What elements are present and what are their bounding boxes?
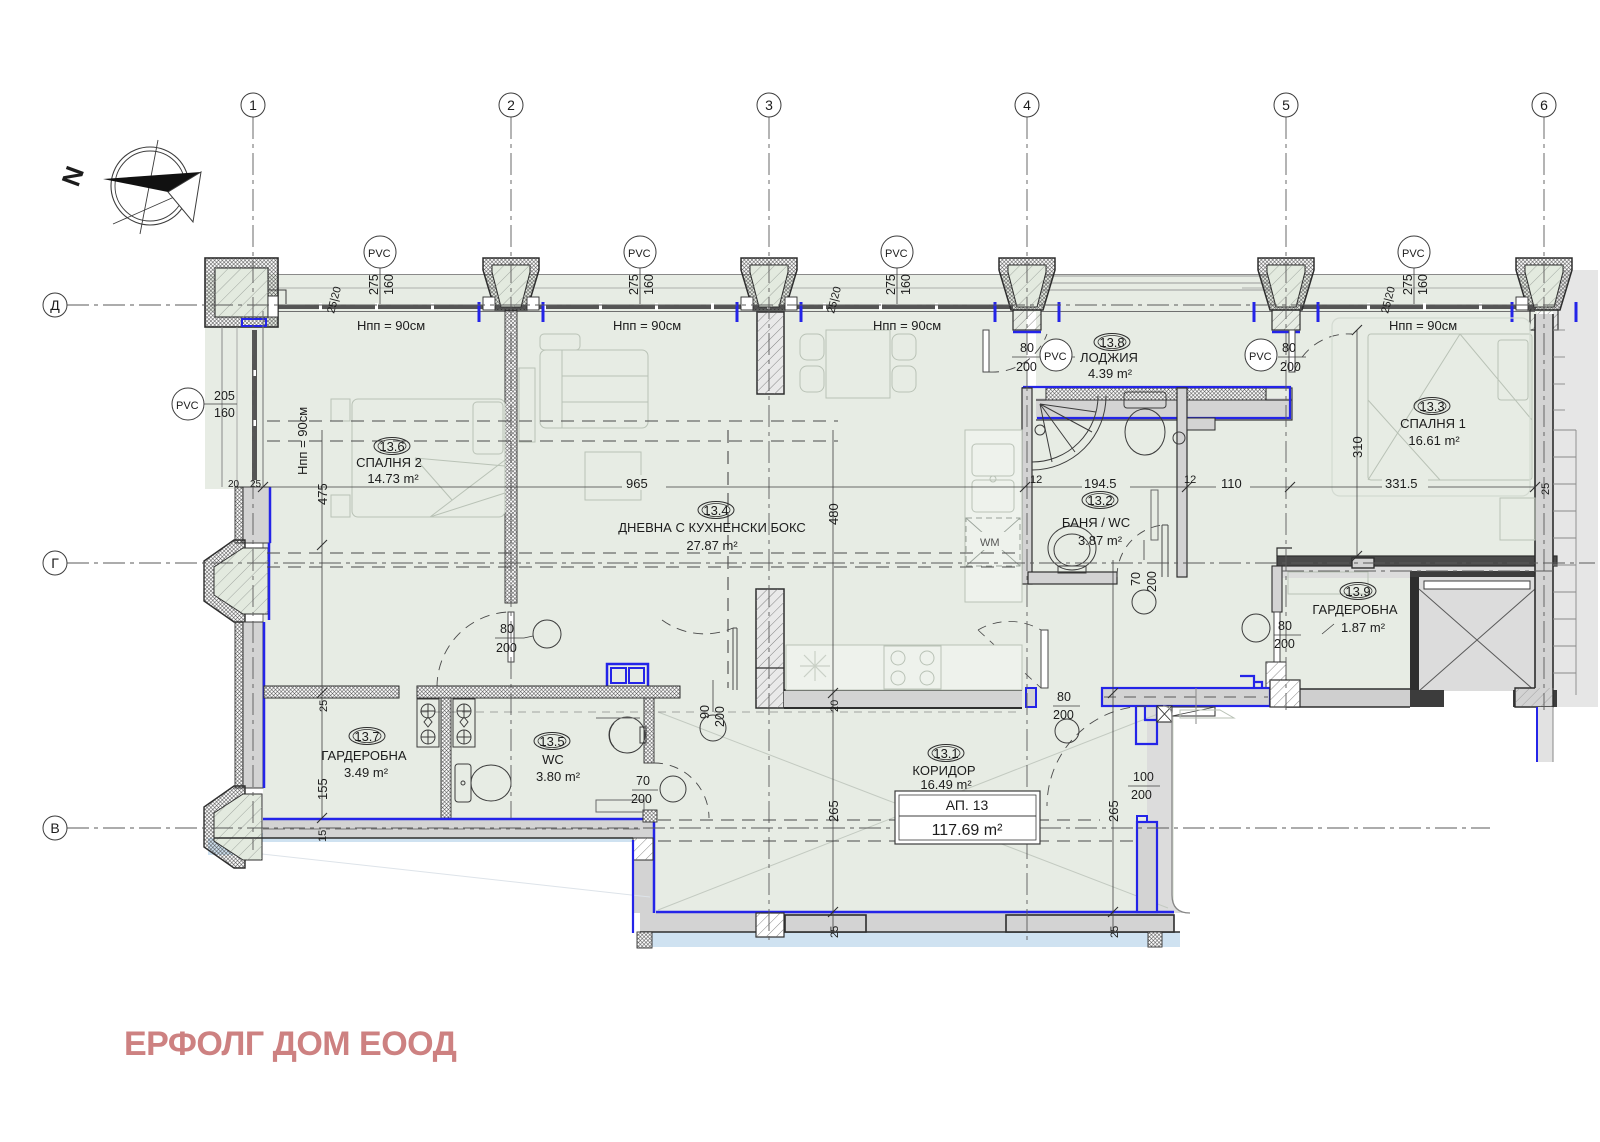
svg-text:25: 25 xyxy=(318,700,330,712)
svg-text:АП. 13: АП. 13 xyxy=(946,797,989,813)
svg-text:200: 200 xyxy=(631,792,652,806)
svg-text:25: 25 xyxy=(829,926,841,938)
svg-text:265: 265 xyxy=(826,800,841,822)
svg-text:80: 80 xyxy=(1057,690,1071,704)
svg-text:3.80 m²: 3.80 m² xyxy=(536,769,581,784)
svg-text:965: 965 xyxy=(626,476,648,491)
svg-text:ДНЕВНА С КУХНЕНСКИ БОКС: ДНЕВНА С КУХНЕНСКИ БОКС xyxy=(618,520,806,535)
svg-text:70: 70 xyxy=(636,774,650,788)
svg-text:275: 275 xyxy=(627,274,641,295)
svg-text:13.1: 13.1 xyxy=(933,746,958,761)
svg-text:90: 90 xyxy=(698,705,712,719)
svg-text:13.7: 13.7 xyxy=(354,729,379,744)
svg-text:4.39 m²: 4.39 m² xyxy=(1088,366,1133,381)
svg-text:194.5: 194.5 xyxy=(1084,476,1117,491)
svg-text:160: 160 xyxy=(1416,274,1430,295)
svg-text:12: 12 xyxy=(1184,474,1196,486)
svg-text:СПАЛНЯ 1: СПАЛНЯ 1 xyxy=(1400,416,1466,431)
svg-text:275: 275 xyxy=(1401,274,1415,295)
svg-text:Нпп = 90см: Нпп = 90см xyxy=(1389,318,1457,333)
svg-text:13.8: 13.8 xyxy=(1099,335,1124,350)
svg-text:КОРИДОР: КОРИДОР xyxy=(912,763,975,778)
svg-text:WC: WC xyxy=(542,752,564,767)
svg-text:15: 15 xyxy=(317,830,329,842)
svg-text:PVC: PVC xyxy=(1044,351,1067,363)
svg-text:20: 20 xyxy=(829,700,841,712)
svg-text:6: 6 xyxy=(1540,97,1548,113)
svg-text:3: 3 xyxy=(765,97,773,113)
svg-text:200: 200 xyxy=(1280,360,1301,374)
svg-text:200: 200 xyxy=(1274,637,1295,651)
svg-text:16.61 m²: 16.61 m² xyxy=(1408,433,1460,448)
svg-text:5: 5 xyxy=(1282,97,1290,113)
svg-text:200: 200 xyxy=(1131,788,1152,802)
svg-text:12: 12 xyxy=(1030,474,1042,486)
svg-text:27.87 m²: 27.87 m² xyxy=(686,538,738,553)
svg-text:13.2: 13.2 xyxy=(1087,493,1112,508)
svg-text:PVC: PVC xyxy=(1402,248,1425,260)
svg-text:160: 160 xyxy=(214,406,235,420)
svg-text:WM: WM xyxy=(980,537,1000,549)
svg-text:200: 200 xyxy=(1016,360,1037,374)
svg-text:275: 275 xyxy=(884,274,898,295)
svg-text:PVC: PVC xyxy=(1249,351,1272,363)
svg-text:160: 160 xyxy=(899,274,913,295)
svg-text:13.6: 13.6 xyxy=(379,439,404,454)
svg-text:80: 80 xyxy=(500,622,514,636)
svg-text:117.69 m²: 117.69 m² xyxy=(932,822,1004,839)
svg-text:ЛОДЖИЯ: ЛОДЖИЯ xyxy=(1080,350,1138,365)
svg-text:Нпп = 90см: Нпп = 90см xyxy=(613,318,681,333)
svg-text:310: 310 xyxy=(1350,436,1365,458)
svg-text:Д: Д xyxy=(50,297,60,313)
svg-text:2: 2 xyxy=(507,97,515,113)
svg-text:PVC: PVC xyxy=(368,248,391,260)
svg-text:Г: Г xyxy=(51,555,59,571)
svg-text:200: 200 xyxy=(1145,571,1159,592)
svg-text:13.9: 13.9 xyxy=(1345,584,1370,599)
svg-text:13.3: 13.3 xyxy=(1419,399,1444,414)
svg-text:25: 25 xyxy=(250,479,262,490)
svg-text:480: 480 xyxy=(826,503,841,525)
svg-text:СПАЛНЯ 2: СПАЛНЯ 2 xyxy=(356,455,422,470)
svg-text:155: 155 xyxy=(315,778,330,800)
svg-text:БАНЯ / WC: БАНЯ / WC xyxy=(1062,515,1130,530)
svg-text:80: 80 xyxy=(1020,341,1034,355)
svg-text:4: 4 xyxy=(1023,97,1031,113)
svg-text:ГАРДЕРОБНА: ГАРДЕРОБНА xyxy=(321,748,407,763)
svg-text:265: 265 xyxy=(1106,800,1121,822)
svg-text:В: В xyxy=(50,820,59,836)
svg-text:1: 1 xyxy=(249,97,257,113)
svg-text:13.4: 13.4 xyxy=(703,503,728,518)
svg-text:475: 475 xyxy=(315,483,330,505)
svg-text:160: 160 xyxy=(642,274,656,295)
svg-text:275: 275 xyxy=(367,274,381,295)
svg-text:25: 25 xyxy=(1109,926,1121,938)
svg-text:25: 25 xyxy=(1540,483,1552,495)
svg-text:ЕРФОЛГ ДОМ ЕООД: ЕРФОЛГ ДОМ ЕООД xyxy=(124,1025,457,1063)
svg-text:205: 205 xyxy=(214,389,235,403)
svg-text:3.87 m²: 3.87 m² xyxy=(1078,533,1123,548)
svg-text:16.49 m²: 16.49 m² xyxy=(920,777,972,792)
svg-text:160: 160 xyxy=(382,274,396,295)
svg-text:80: 80 xyxy=(1278,619,1292,633)
svg-text:PVC: PVC xyxy=(176,400,199,412)
svg-text:PVC: PVC xyxy=(885,248,908,260)
svg-text:200: 200 xyxy=(496,641,517,655)
svg-text:Нпп = 90см: Нпп = 90см xyxy=(295,407,310,475)
svg-text:331.5: 331.5 xyxy=(1385,476,1418,491)
svg-text:ГАРДЕРОБНА: ГАРДЕРОБНА xyxy=(1312,602,1398,617)
svg-text:13.5: 13.5 xyxy=(539,734,564,749)
svg-text:80: 80 xyxy=(1282,341,1296,355)
svg-text:20: 20 xyxy=(228,479,240,490)
svg-text:70: 70 xyxy=(1129,572,1143,586)
svg-text:3.49 m²: 3.49 m² xyxy=(344,765,389,780)
svg-text:Нпп = 90см: Нпп = 90см xyxy=(357,318,425,333)
svg-text:PVC: PVC xyxy=(628,248,651,260)
svg-text:Нпп = 90см: Нпп = 90см xyxy=(873,318,941,333)
svg-text:1.87 m²: 1.87 m² xyxy=(1341,620,1386,635)
svg-text:100: 100 xyxy=(1133,770,1154,784)
svg-text:110: 110 xyxy=(1221,476,1242,491)
svg-text:14.73 m²: 14.73 m² xyxy=(367,471,419,486)
